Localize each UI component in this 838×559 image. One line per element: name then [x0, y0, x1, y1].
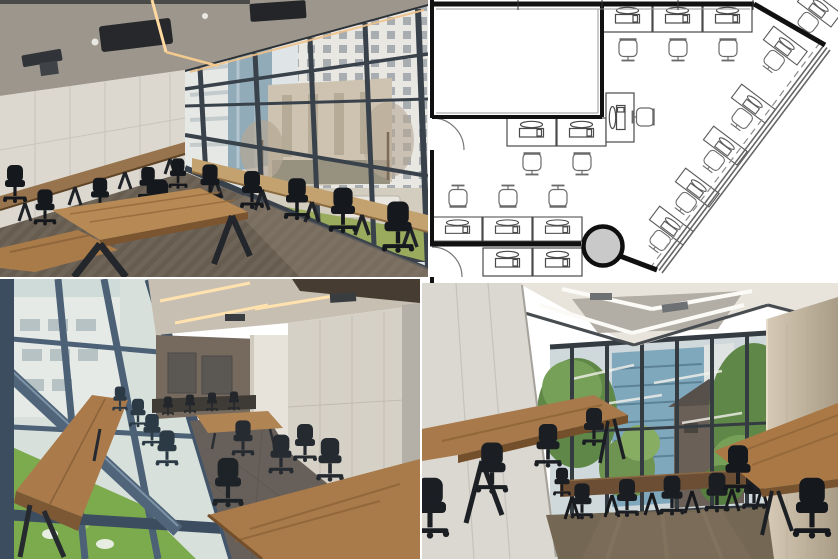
plan-column — [584, 227, 623, 266]
plan-desks-cut-row — [483, 248, 582, 276]
ac-vent — [330, 292, 357, 303]
photo-collage — [0, 0, 838, 559]
plan-desks-top-row — [603, 4, 752, 61]
photo-office-rear-view — [422, 283, 838, 559]
ac-vent — [590, 293, 612, 300]
photo-window-corner-room — [0, 279, 420, 559]
window-frame — [0, 279, 14, 559]
ac-vent — [225, 314, 245, 321]
photo-training-room — [0, 0, 428, 277]
floor-plan — [428, 0, 838, 283]
speaker — [39, 61, 59, 76]
